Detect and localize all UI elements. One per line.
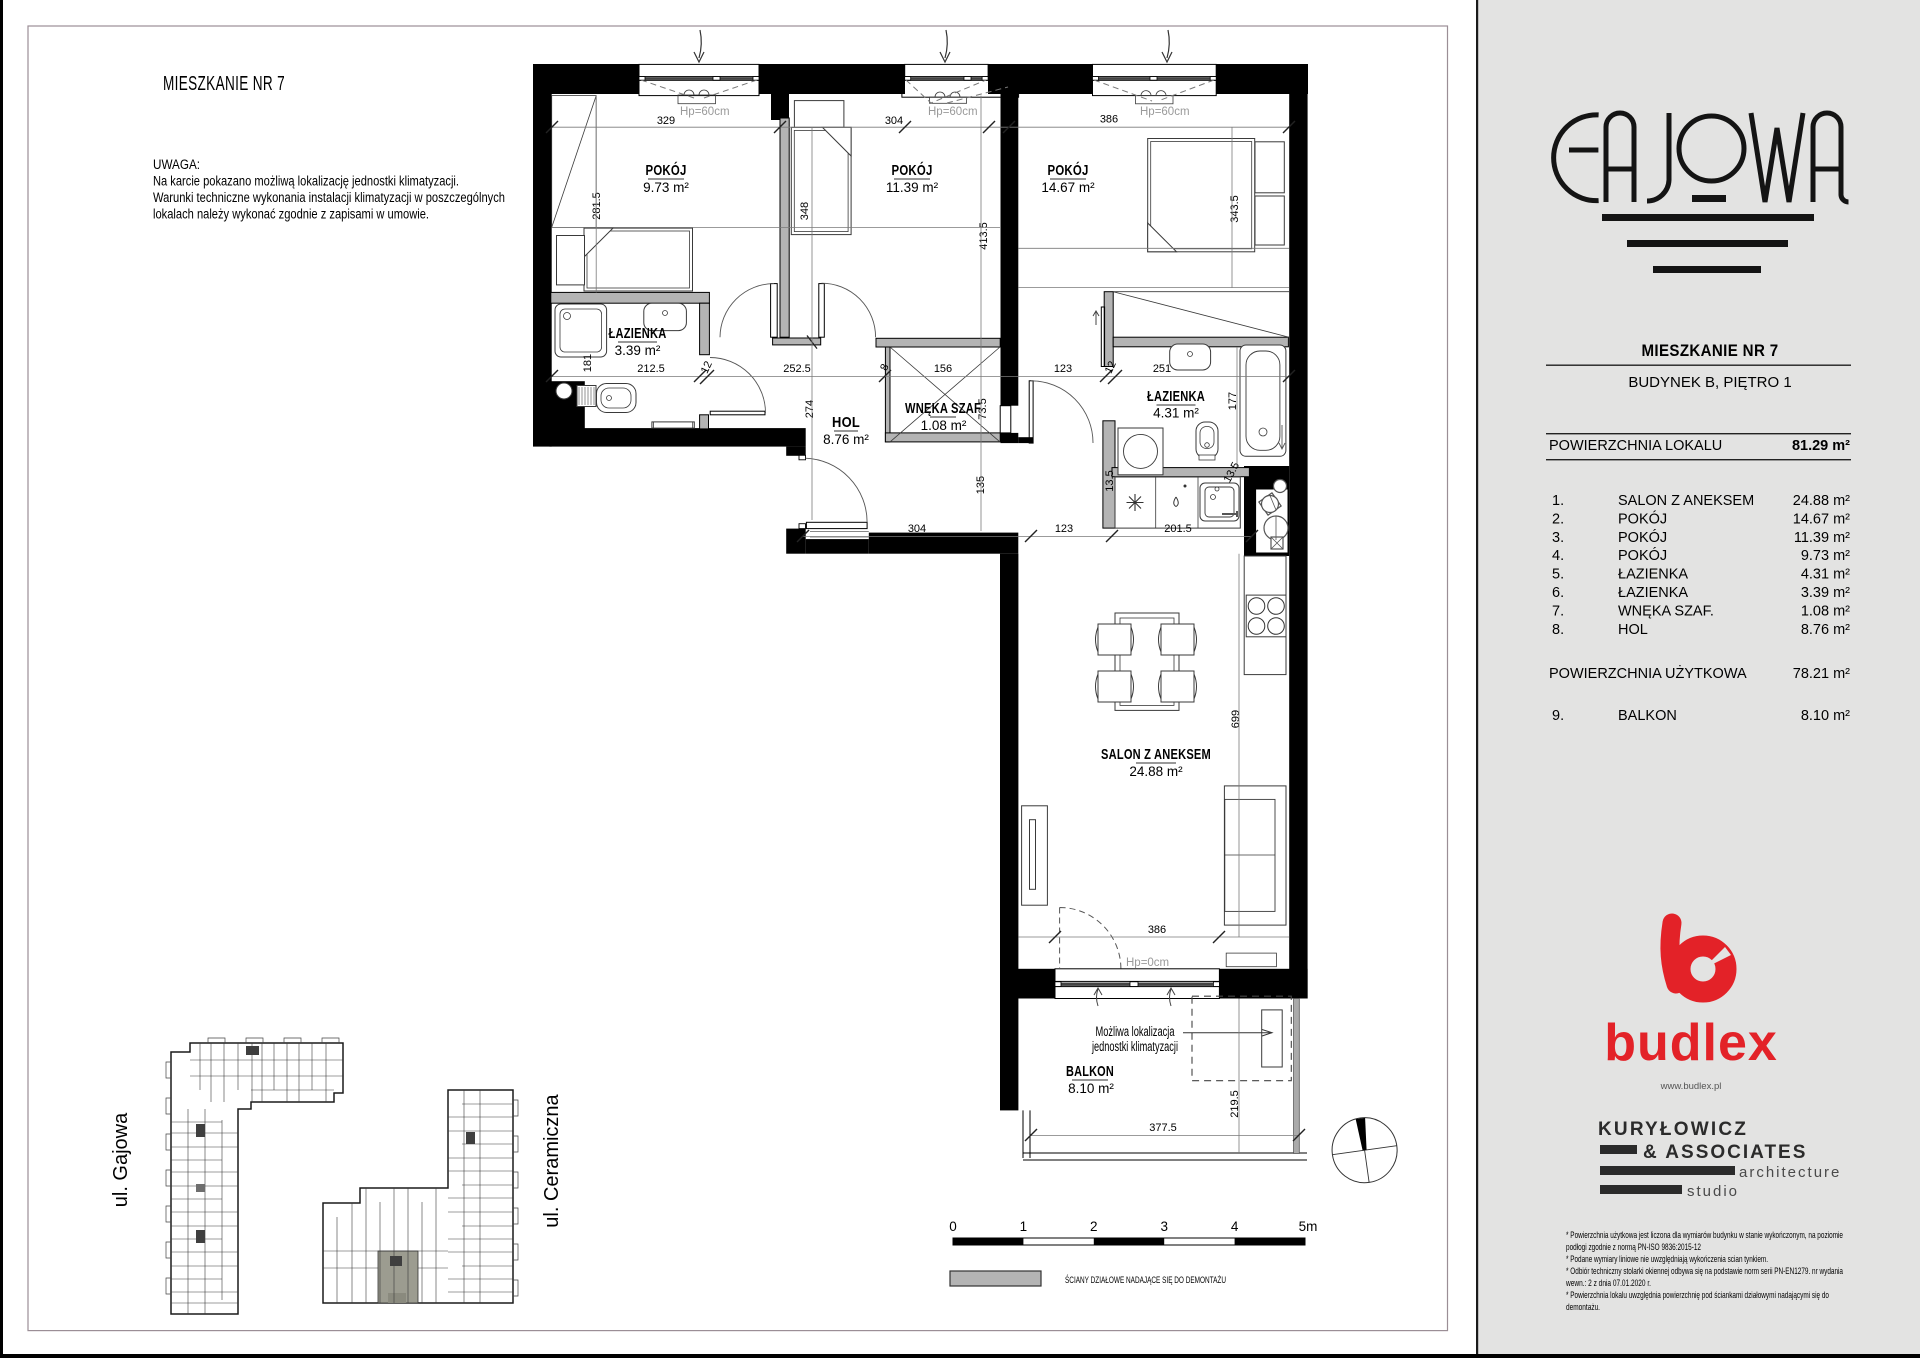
svg-text:8.10 m²: 8.10 m² <box>1801 708 1850 724</box>
svg-text:5.: 5. <box>1552 567 1564 583</box>
svg-text:wewn.: 2 z dnia 07.01.2020 r.: wewn.: 2 z dnia 07.01.2020 r. <box>1565 1278 1651 1288</box>
svg-text:POKÓJ: POKÓJ <box>892 161 933 179</box>
svg-text:Hp=60cm: Hp=60cm <box>1140 106 1190 118</box>
svg-text:252.5: 252.5 <box>783 363 811 375</box>
svg-text:studio: studio <box>1687 1183 1739 1200</box>
svg-text:9.73 m²: 9.73 m² <box>1801 548 1850 564</box>
svg-text:2.: 2. <box>1552 511 1564 527</box>
svg-text:181: 181 <box>582 354 594 372</box>
svg-text:11.39 m²: 11.39 m² <box>886 180 939 195</box>
svg-text:ŁAZIENKA: ŁAZIENKA <box>609 325 667 342</box>
svg-text:8.10 m²: 8.10 m² <box>1068 1081 1114 1096</box>
svg-text:ul. Gajowa: ul. Gajowa <box>110 1112 132 1207</box>
svg-text:Hp=60cm: Hp=60cm <box>928 106 978 118</box>
svg-text:9.: 9. <box>1552 708 1564 724</box>
svg-text:podłogi zgodnie z normą PN-ISO: podłogi zgodnie z normą PN-ISO 9836:2015… <box>1566 1242 1701 1252</box>
svg-text:1.: 1. <box>1552 493 1564 509</box>
svg-text:ŁAZIENKA: ŁAZIENKA <box>1618 585 1688 601</box>
svg-text:8.76 m²: 8.76 m² <box>823 432 869 447</box>
svg-text:BUDYNEK B, PIĘTRO 1: BUDYNEK B, PIĘTRO 1 <box>1628 374 1791 391</box>
svg-text:POKÓJ: POKÓJ <box>1048 161 1089 179</box>
svg-text:13.5: 13.5 <box>1104 470 1116 491</box>
svg-text:212.5: 212.5 <box>637 363 665 375</box>
svg-text:377.5: 377.5 <box>1149 1122 1177 1134</box>
svg-text:3.39 m²: 3.39 m² <box>615 343 661 358</box>
svg-text:MIESZKANIE NR 7: MIESZKANIE NR 7 <box>1642 341 1779 360</box>
svg-text:SALON Z ANEKSEM: SALON Z ANEKSEM <box>1101 746 1211 763</box>
svg-text:329: 329 <box>657 115 675 127</box>
svg-text:* Powierzchnia użytkowa jest l: * Powierzchnia użytkowa jest liczona dla… <box>1566 1230 1843 1240</box>
svg-text:11.39 m²: 11.39 m² <box>1794 530 1850 546</box>
svg-text:& ASSOCIATES: & ASSOCIATES <box>1643 1142 1807 1163</box>
svg-text:413.5: 413.5 <box>978 222 990 250</box>
svg-text:6.: 6. <box>1552 585 1564 601</box>
svg-text:Możliwa lokalizacja: Możliwa lokalizacja <box>1096 1024 1175 1039</box>
svg-text:Na karcie pokazano możliwą lok: Na karcie pokazano możliwą lokalizację j… <box>153 174 459 189</box>
svg-text:POKÓJ: POKÓJ <box>1618 510 1667 527</box>
svg-text:274: 274 <box>804 400 816 418</box>
svg-text:304: 304 <box>885 115 903 127</box>
svg-text:ŁAZIENKA: ŁAZIENKA <box>1147 388 1205 405</box>
svg-text:UWAGA:: UWAGA: <box>153 157 200 172</box>
svg-text:348: 348 <box>799 202 811 220</box>
svg-text:3: 3 <box>1160 1219 1168 1234</box>
svg-text:www.budlex.pl: www.budlex.pl <box>1660 1081 1722 1092</box>
svg-text:POKÓJ: POKÓJ <box>646 161 687 179</box>
svg-text:78.21 m²: 78.21 m² <box>1793 666 1850 682</box>
svg-text:HOL: HOL <box>832 414 860 431</box>
svg-text:1.08 m²: 1.08 m² <box>1801 603 1850 619</box>
svg-text:* Powierzchnia lokalu uwzględn: * Powierzchnia lokalu uwzględnia powierz… <box>1566 1290 1829 1300</box>
svg-text:8.76 m²: 8.76 m² <box>1801 622 1850 638</box>
svg-text:201.5: 201.5 <box>1164 523 1192 535</box>
svg-text:3.39 m²: 3.39 m² <box>1801 585 1850 601</box>
svg-text:343.5: 343.5 <box>1229 195 1241 223</box>
svg-text:WNĘKA SZAF: WNĘKA SZAF <box>905 400 981 417</box>
svg-text:8.: 8. <box>1552 622 1564 638</box>
svg-text:WNĘKA SZAF.: WNĘKA SZAF. <box>1618 603 1714 619</box>
svg-text:BALKON: BALKON <box>1066 1063 1114 1080</box>
svg-text:lokalach należy wykonać zgodni: lokalach należy wykonać zgodnie z zapisa… <box>153 207 429 222</box>
svg-text:9.73 m²: 9.73 m² <box>643 180 689 195</box>
svg-text:386: 386 <box>1100 114 1118 126</box>
svg-text:4: 4 <box>1231 1219 1239 1234</box>
svg-text:ŁAZIENKA: ŁAZIENKA <box>1618 567 1688 583</box>
svg-text:4.31 m²: 4.31 m² <box>1153 406 1199 421</box>
svg-text:BALKON: BALKON <box>1618 708 1677 724</box>
svg-text:123: 123 <box>1054 363 1072 375</box>
svg-text:jednostki klimatyzacji: jednostki klimatyzacji <box>1091 1039 1178 1054</box>
svg-text:Hp=0cm: Hp=0cm <box>1126 957 1169 969</box>
svg-text:2: 2 <box>1090 1219 1098 1234</box>
svg-text:MIESZKANIE NR 7: MIESZKANIE NR 7 <box>163 73 285 95</box>
svg-text:Warunki techniczne wykonania i: Warunki techniczne wykonania instalacji … <box>153 190 505 205</box>
svg-text:4.: 4. <box>1552 548 1564 564</box>
svg-text:3.: 3. <box>1552 530 1564 546</box>
svg-text:24.88 m²: 24.88 m² <box>1793 493 1850 509</box>
svg-text:386: 386 <box>1148 924 1166 936</box>
svg-text:0: 0 <box>949 1219 957 1234</box>
svg-text:14.67 m²: 14.67 m² <box>1041 180 1095 195</box>
svg-text:81.29 m²: 81.29 m² <box>1792 438 1850 454</box>
svg-text:KURYŁOWICZ: KURYŁOWICZ <box>1598 1119 1748 1140</box>
svg-text:HOL: HOL <box>1618 622 1648 638</box>
svg-text:ul. Ceramiczna: ul. Ceramiczna <box>541 1093 563 1227</box>
svg-text:POWIERZCHNIA LOKALU: POWIERZCHNIA LOKALU <box>1549 438 1722 454</box>
svg-text:* Podane wymiary liniowe nie u: * Podane wymiary liniowe nie uwzględniaj… <box>1566 1254 1768 1264</box>
svg-text:POKÓJ: POKÓJ <box>1618 547 1667 564</box>
svg-text:POKÓJ: POKÓJ <box>1618 529 1667 546</box>
svg-text:156: 156 <box>934 363 952 375</box>
svg-text:4.31 m²: 4.31 m² <box>1801 567 1850 583</box>
svg-text:24.88 m²: 24.88 m² <box>1129 764 1183 779</box>
svg-text:14.67 m²: 14.67 m² <box>1793 511 1850 527</box>
svg-text:1: 1 <box>1020 1219 1028 1234</box>
svg-text:SALON Z ANEKSEM: SALON Z ANEKSEM <box>1618 493 1754 509</box>
svg-text:5m: 5m <box>1299 1219 1318 1234</box>
svg-text:budlex: budlex <box>1604 1014 1778 1072</box>
svg-text:123: 123 <box>1055 523 1073 535</box>
svg-text:73.5: 73.5 <box>977 398 989 419</box>
svg-text:304: 304 <box>908 523 926 535</box>
svg-text:251: 251 <box>1153 363 1171 375</box>
svg-text:demontażu.: demontażu. <box>1566 1302 1600 1312</box>
svg-text:281.5: 281.5 <box>591 192 603 220</box>
svg-text:7.: 7. <box>1552 603 1564 619</box>
svg-text:699: 699 <box>1230 710 1242 728</box>
svg-text:POWIERZCHNIA UŻYTKOWA: POWIERZCHNIA UŻYTKOWA <box>1549 664 1747 682</box>
svg-text:Hp=60cm: Hp=60cm <box>680 106 730 118</box>
svg-text:1.08 m²: 1.08 m² <box>921 418 967 433</box>
svg-text:ŚCIANY DZIAŁOWE NADAJĄCE SIĘ D: ŚCIANY DZIAŁOWE NADAJĄCE SIĘ DO DEMONTAŻ… <box>1065 1274 1226 1286</box>
svg-text:* Odbiór techniczny stolarki o: * Odbiór techniczny stolarki okiennej od… <box>1566 1266 1844 1276</box>
svg-text:architecture: architecture <box>1739 1164 1841 1181</box>
